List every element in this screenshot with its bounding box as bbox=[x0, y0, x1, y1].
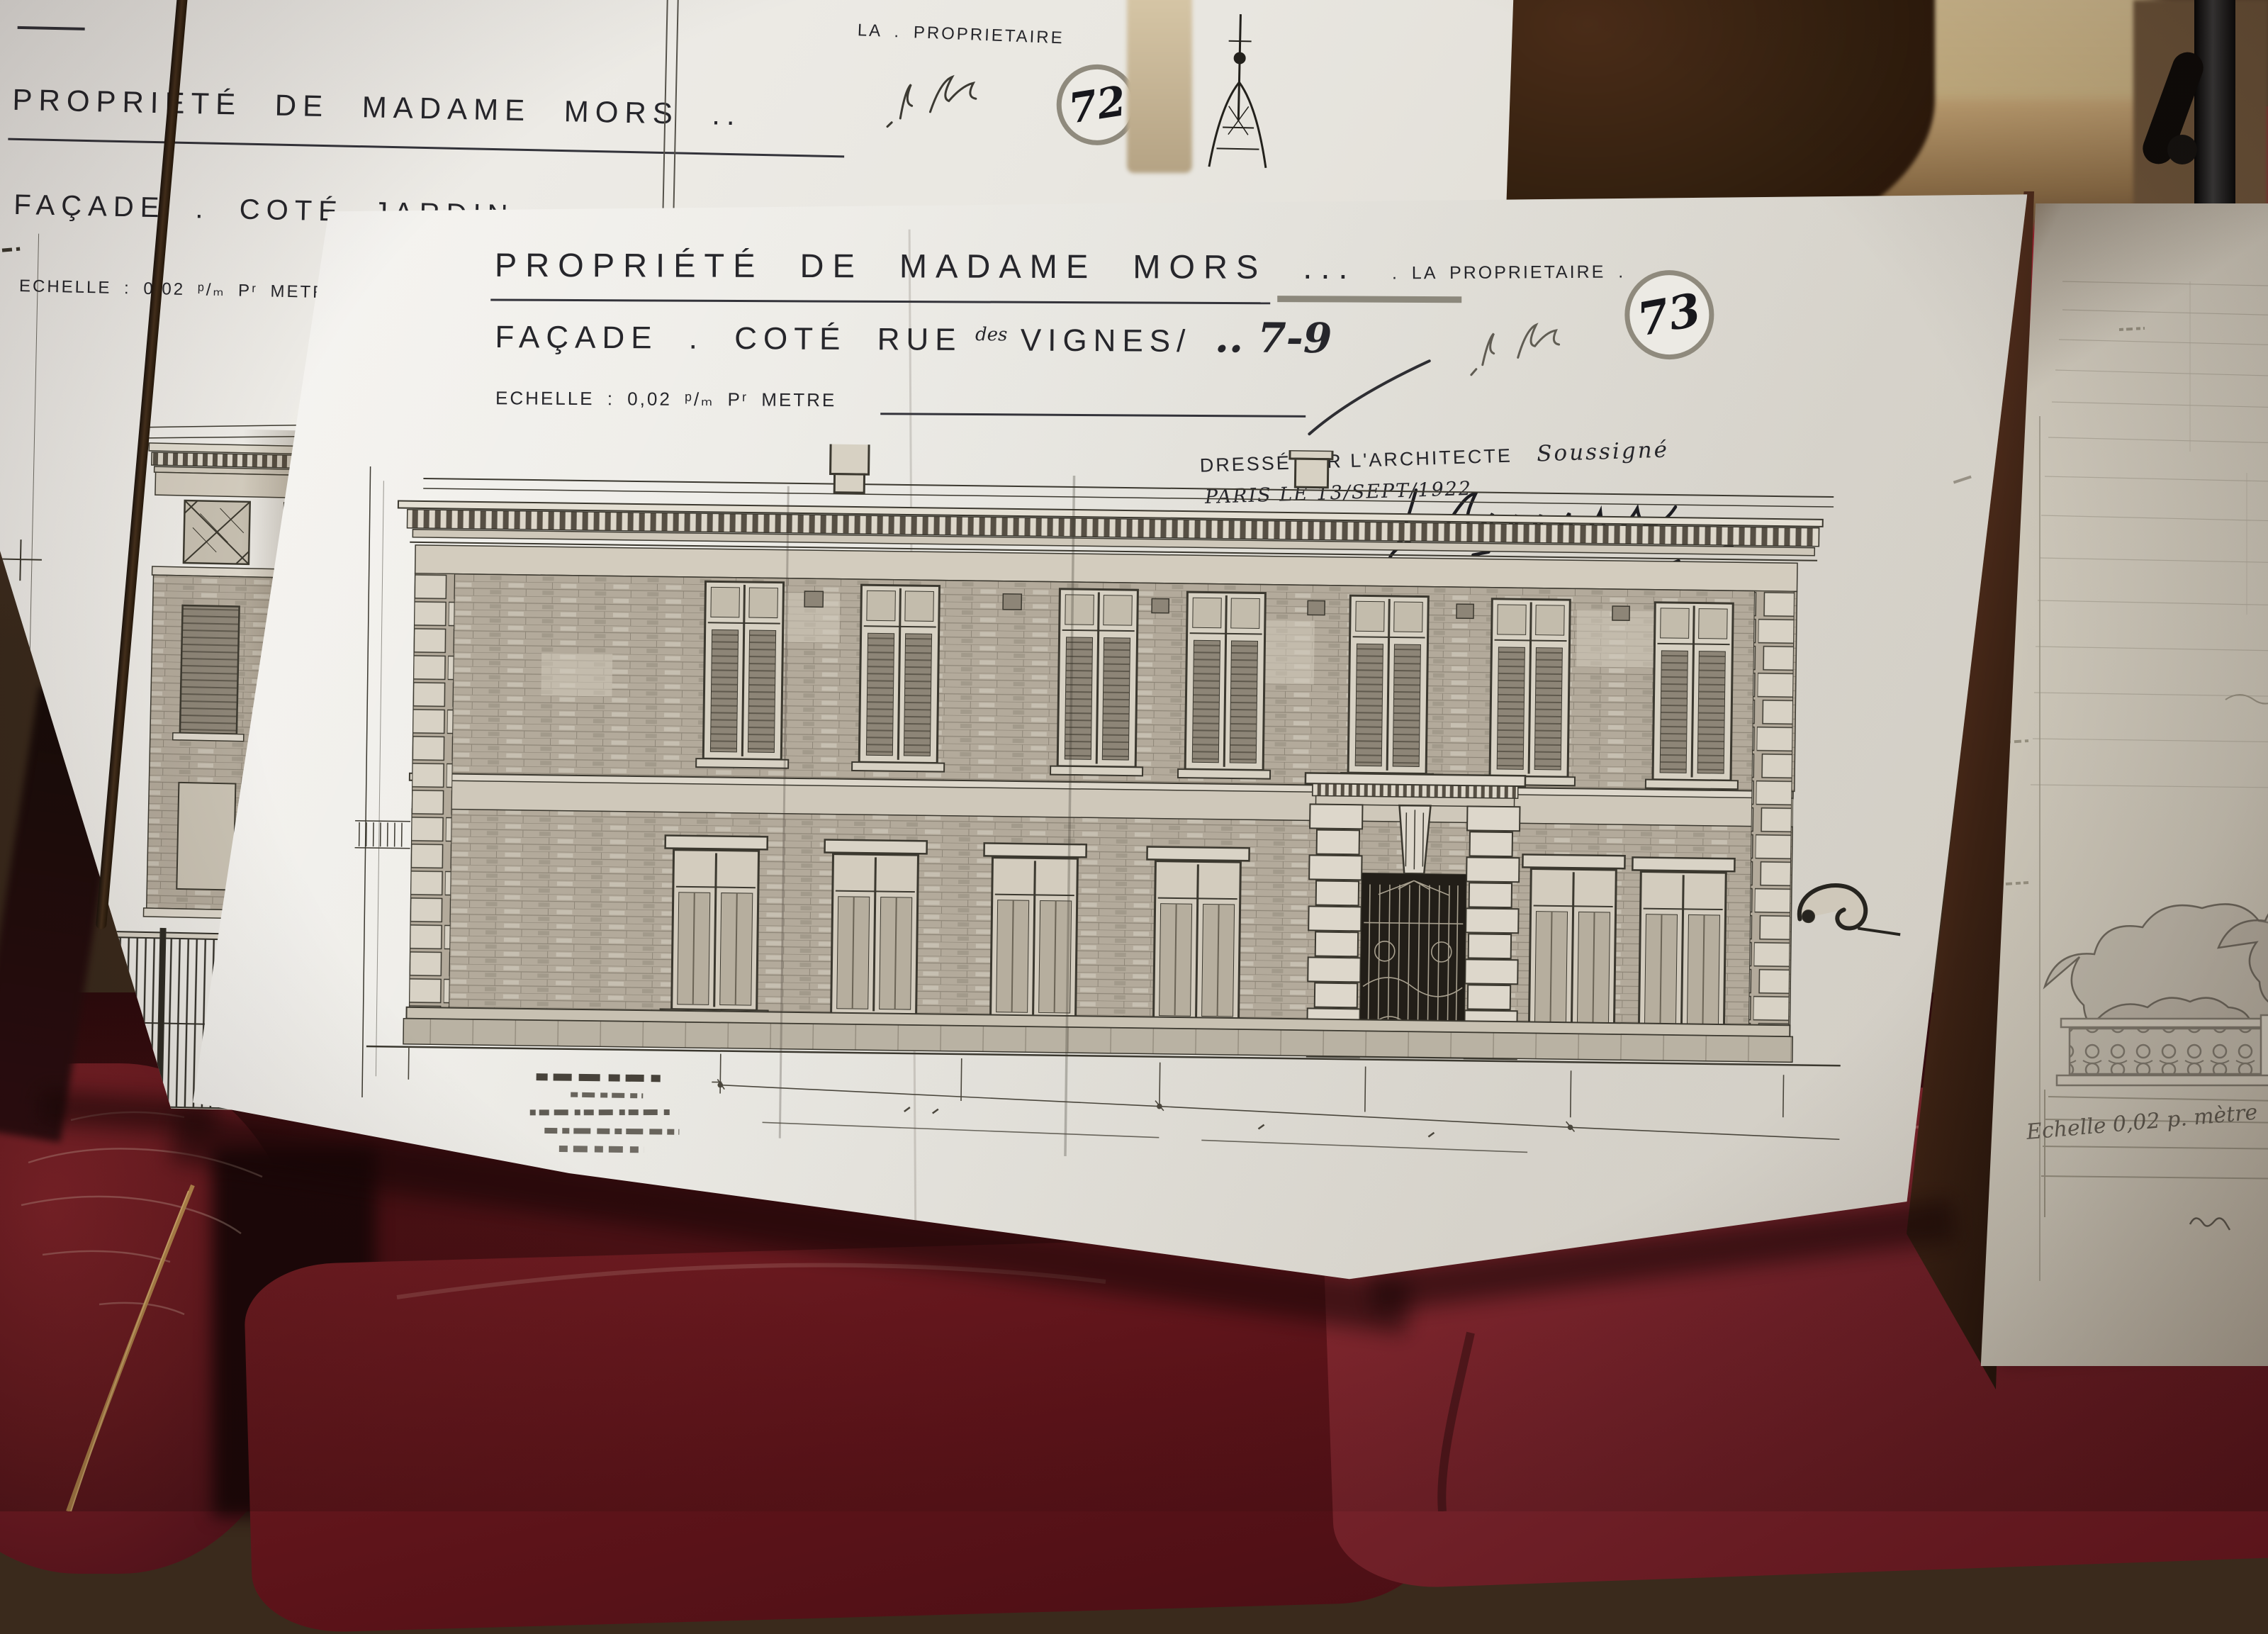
drawing-board-73: PROPRIÉTÉ DE MADAME MORS ... FAÇADE . CO… bbox=[167, 180, 2033, 1297]
roof-finial-drawing bbox=[1195, 13, 1284, 174]
subtitle-prefix: FAÇADE . COTÉ RUE bbox=[495, 320, 962, 357]
street-facade-drawing bbox=[322, 437, 1912, 1238]
board72-title-underline bbox=[8, 138, 844, 158]
board73-subtitle: FAÇADE . COTÉ RUE des VIGNES/ .. 7-9 bbox=[495, 309, 1332, 362]
margin-pencil-mark bbox=[1953, 476, 1972, 484]
board73-scale: ECHELLE : 0,02 ᵖ/ₘ Pʳ METRE bbox=[495, 387, 836, 411]
subtitle-flourish bbox=[1302, 354, 1444, 440]
garden-wall-scale-note: Echelle 0,02 p. mètre bbox=[2025, 1100, 2259, 1145]
owner-signature-scribble-73 bbox=[1461, 318, 1589, 382]
owner-signature-scribble-72 bbox=[880, 68, 1016, 135]
metal-stand-pole bbox=[2194, 0, 2235, 220]
sheet-number-badge-73: 73 bbox=[1624, 270, 1714, 360]
stand-clamp-knob bbox=[2167, 135, 2197, 164]
board73-owner-label: . LA PROPRIETAIRE . bbox=[1392, 262, 1625, 284]
background-pillar bbox=[1127, 0, 1192, 173]
board73-title-rule-gray bbox=[1277, 296, 1461, 303]
sheet-number-badge-72: 72 bbox=[1056, 64, 1138, 146]
board73-scale-rule bbox=[880, 413, 1306, 418]
board73-title-underline bbox=[490, 298, 1270, 304]
board72-title: PROPRIÉTÉ DE MADAME MORS .. bbox=[12, 83, 741, 133]
board72-owner-label: LA . PROPRIETAIRE bbox=[857, 21, 1065, 48]
top-tick-rule bbox=[18, 26, 85, 30]
subtitle-des: des bbox=[975, 324, 1008, 345]
architect-stamp bbox=[529, 1074, 680, 1153]
subtitle-street: VIGNES/ bbox=[1021, 323, 1192, 359]
board73-title: PROPRIÉTÉ DE MADAME MORS ... bbox=[495, 245, 1357, 286]
